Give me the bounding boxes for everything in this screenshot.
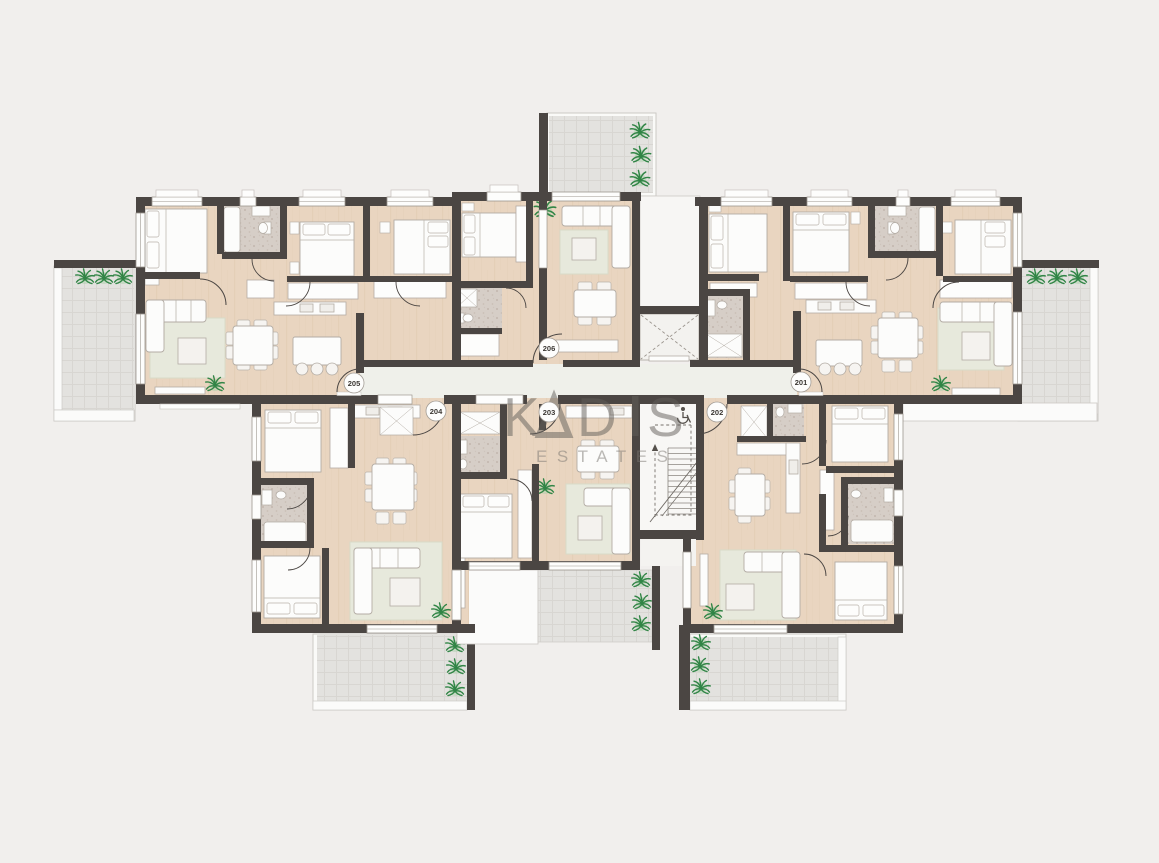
svg-text:D: D	[577, 386, 617, 448]
svg-text:S: S	[647, 386, 684, 448]
svg-text:201: 201	[795, 378, 808, 387]
svg-text:K: K	[503, 386, 540, 448]
svg-text:204: 204	[430, 407, 443, 416]
svg-text:ESTATES: ESTATES	[536, 447, 677, 466]
svg-text:205: 205	[348, 379, 361, 388]
svg-text:206: 206	[543, 344, 556, 353]
svg-text:202: 202	[711, 408, 724, 417]
svg-text:203: 203	[543, 408, 556, 417]
